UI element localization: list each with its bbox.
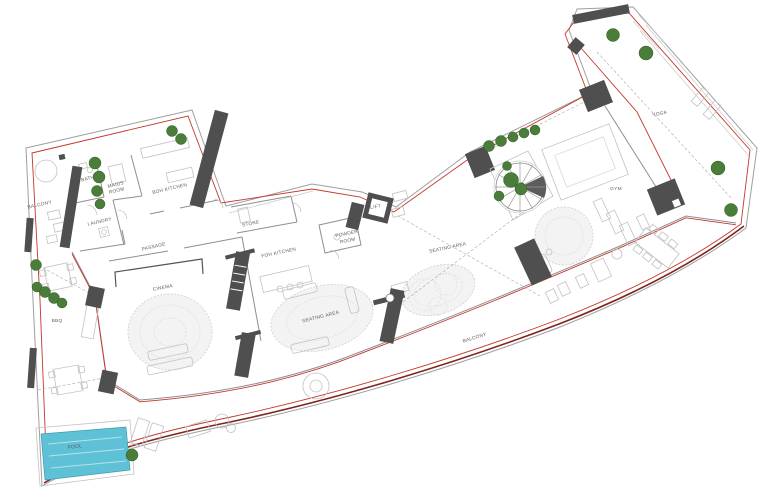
unit-outline [26,7,757,486]
gym-rug [535,207,593,265]
floor-plan-drawing: BALCONY BATH MAIDS ROOM BOH KITCHEN LAUN… [0,0,768,498]
outer-shell [26,7,757,486]
floor-plan-canvas: BALCONY BATH MAIDS ROOM BOH KITCHEN LAUN… [0,0,768,498]
room-label-bbq: BBQ [52,318,63,324]
room-label-gym: GYM [610,186,622,192]
cinema-rug [128,294,212,370]
pool-water [41,427,130,480]
